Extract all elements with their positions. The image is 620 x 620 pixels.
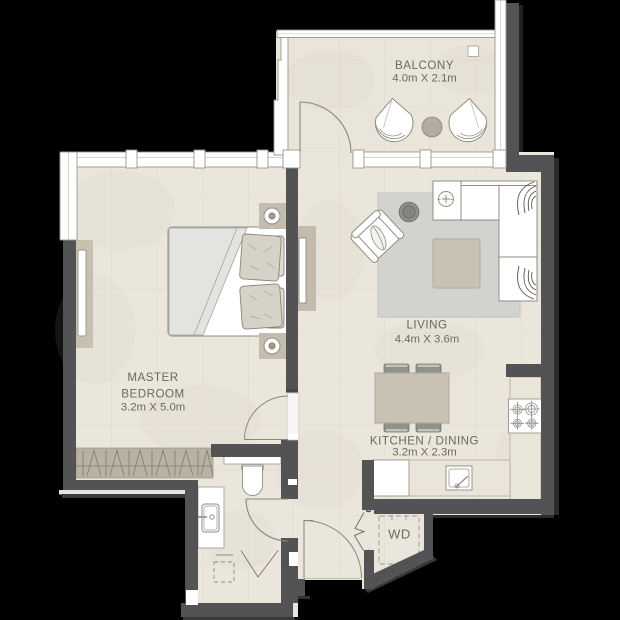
svg-text:4.4m X 3.6m: 4.4m X 3.6m	[395, 334, 460, 346]
svg-text:KITCHEN / DINING: KITCHEN / DINING	[370, 434, 479, 447]
svg-text:4.0m X 2.1m: 4.0m X 2.1m	[392, 73, 457, 85]
svg-text:3.2m X 2.3m: 3.2m X 2.3m	[392, 447, 457, 459]
svg-text:BEDROOM: BEDROOM	[121, 387, 184, 400]
svg-text:BALCONY: BALCONY	[395, 59, 454, 72]
svg-text:3.2m X 5.0m: 3.2m X 5.0m	[121, 402, 186, 414]
svg-text:LIVING: LIVING	[406, 319, 447, 332]
svg-text:MASTER: MASTER	[127, 371, 178, 384]
svg-text:WD: WD	[388, 527, 411, 542]
